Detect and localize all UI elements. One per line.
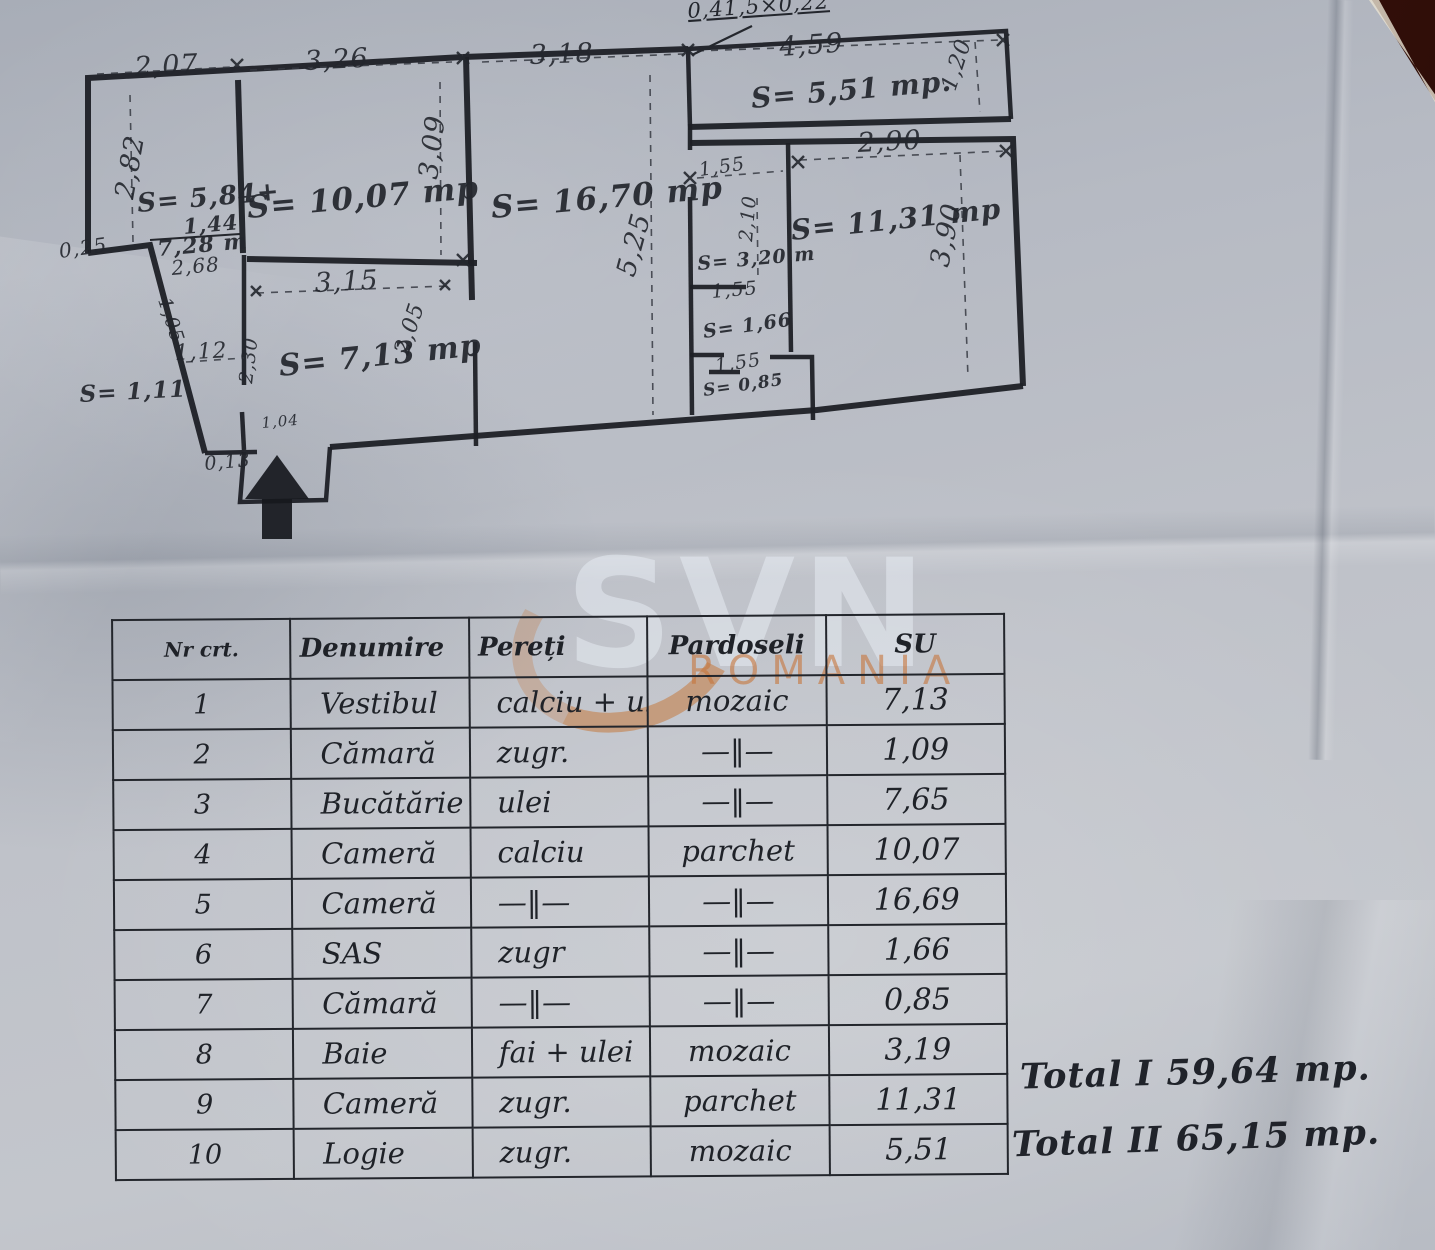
table-cell: Logie xyxy=(294,1128,473,1179)
plan-label: 0,13 xyxy=(204,449,252,475)
table-cell: —‖— xyxy=(648,725,827,776)
rooms-table: Nr crt.DenumirePerețiPardoseliSU 1Vestib… xyxy=(111,613,1009,1181)
column-header: Nr crt. xyxy=(112,619,291,680)
plan-label: 2,68 xyxy=(169,252,220,280)
table-cell: 1,66 xyxy=(828,924,1007,975)
table-cell: 5 xyxy=(114,879,293,930)
table-cell: 16,69 xyxy=(827,874,1006,925)
table-cell: mozaic xyxy=(650,1025,829,1076)
table-row: 10Logiezugr.mozaic5,51 xyxy=(116,1124,1008,1180)
table-cell: 1 xyxy=(112,679,291,730)
table-cell: Baie xyxy=(293,1028,472,1079)
plan-label: 1,04 xyxy=(261,411,300,432)
plan-label: S= 5,51 mp. xyxy=(750,65,953,115)
table-cell: 0,85 xyxy=(828,974,1007,1025)
plan-label: 3,26 xyxy=(304,43,370,77)
plan-label: 3,09 xyxy=(413,113,452,180)
table-cell: 3,19 xyxy=(828,1024,1007,1075)
table-cell: mozaic xyxy=(651,1125,830,1176)
column-header: Pereți xyxy=(469,616,648,677)
table-cell: 4 xyxy=(114,829,293,880)
table-cell: zugr. xyxy=(470,726,649,777)
table-cell: 9 xyxy=(115,1079,294,1130)
table-cell: 8 xyxy=(115,1029,294,1080)
floor-plan: 2,073,263,184,590,41,5×0,222,823,091,202… xyxy=(0,0,1435,545)
table-cell: 11,31 xyxy=(829,1074,1008,1125)
plan-label: S= 3,20 m xyxy=(697,243,817,275)
plan-label: S= 0,85 xyxy=(702,370,785,401)
table-cell: Bucătărie xyxy=(292,778,471,829)
table-cell: 3 xyxy=(113,779,292,830)
column-header: Pardoseli xyxy=(647,615,826,676)
table-row: 4Camerăcalciuparchet10,07 xyxy=(114,824,1006,880)
table-row: 1Vestibulcalciu + uleimozaic7,13 xyxy=(112,674,1004,730)
table-cell: parchet xyxy=(649,825,828,876)
table-cell: —‖— xyxy=(471,876,650,927)
table-cell: —‖— xyxy=(650,975,829,1026)
table-cell: —‖— xyxy=(649,875,828,926)
plan-label: S= 7,13 mp xyxy=(277,328,483,384)
table-cell: —‖— xyxy=(648,775,827,826)
table-cell: ulei xyxy=(470,776,649,827)
table-cell: Cămară xyxy=(291,728,470,779)
table-cell: zugr. xyxy=(472,1076,651,1127)
column-header: SU xyxy=(826,614,1005,675)
plan-label: 5,25 xyxy=(611,210,658,280)
table-cell: zugr. xyxy=(472,1126,651,1177)
plan-label: 1,12 xyxy=(174,338,228,366)
table-cell: 10,07 xyxy=(827,824,1006,875)
table-cell: Cameră xyxy=(292,828,471,879)
table-header-row: Nr crt.DenumirePerețiPardoseliSU xyxy=(112,614,1004,680)
table-cell: 7 xyxy=(115,979,294,1030)
table-cell: —‖— xyxy=(471,976,650,1027)
table-row: 9Camerăzugr.parchet11,31 xyxy=(115,1074,1007,1130)
table-row: 6SASzugr—‖—1,66 xyxy=(114,924,1006,980)
table-row: 5Cameră—‖——‖—16,69 xyxy=(114,874,1006,930)
plan-label: 0,41,5×0,22 xyxy=(687,0,830,23)
plan-label: 2,07 xyxy=(133,49,200,83)
table-row: 8Baiefai + uleimozaic3,19 xyxy=(115,1024,1007,1080)
table-cell: —‖— xyxy=(649,925,828,976)
plan-label: 1,05 xyxy=(153,295,188,346)
table-cell: 6 xyxy=(114,929,293,980)
plan-label: 1,55 xyxy=(711,277,759,303)
entrance-arrow xyxy=(245,455,309,539)
table-cell: Cameră xyxy=(294,1078,473,1129)
plan-label: S= 11,31 mp xyxy=(789,192,1002,247)
plan-label: 2,10 xyxy=(735,194,761,243)
table-cell: calciu xyxy=(470,826,649,877)
table-cell: calciu + ulei xyxy=(469,676,648,727)
plan-label: 2,90 xyxy=(856,125,923,159)
table-row: 3Bucătărieulei—‖—7,65 xyxy=(113,774,1005,830)
table-row: 2Cămarăzugr.—‖—1,09 xyxy=(113,724,1005,780)
plan-label: S= 10,07 mp xyxy=(246,170,481,226)
table-row: 7Cămară—‖——‖—0,85 xyxy=(115,974,1007,1030)
table-cell: Vestibul xyxy=(291,678,470,729)
table-cell: 7,13 xyxy=(826,674,1005,725)
plan-label: S= 1,66 xyxy=(702,309,794,343)
table-cell: 5,51 xyxy=(829,1124,1008,1175)
plan-label: 3,18 xyxy=(529,38,594,71)
table-cell: 10 xyxy=(116,1129,295,1180)
table-cell: zugr xyxy=(471,926,650,977)
plan-label: S= 1,11 xyxy=(79,375,187,408)
plan-label: 0,25 xyxy=(57,232,108,263)
table-cell: parchet xyxy=(650,1075,829,1126)
scanned-document: 2,073,263,184,590,41,5×0,222,823,091,202… xyxy=(0,0,1435,1250)
table-cell: Cameră xyxy=(292,878,471,929)
table-cell: SAS xyxy=(293,928,472,979)
table-cell: 1,09 xyxy=(826,724,1005,775)
table-cell: 7,65 xyxy=(827,774,1006,825)
column-header: Denumire xyxy=(290,618,469,679)
table-cell: fai + ulei xyxy=(472,1026,651,1077)
plan-label: 2,30 xyxy=(235,336,263,386)
plan-label: 4,59 xyxy=(777,28,844,63)
table-cell: mozaic xyxy=(648,675,827,726)
table-cell: 2 xyxy=(113,729,292,780)
plan-label: 3,15 xyxy=(314,265,380,299)
table-cell: Cămară xyxy=(293,978,472,1029)
